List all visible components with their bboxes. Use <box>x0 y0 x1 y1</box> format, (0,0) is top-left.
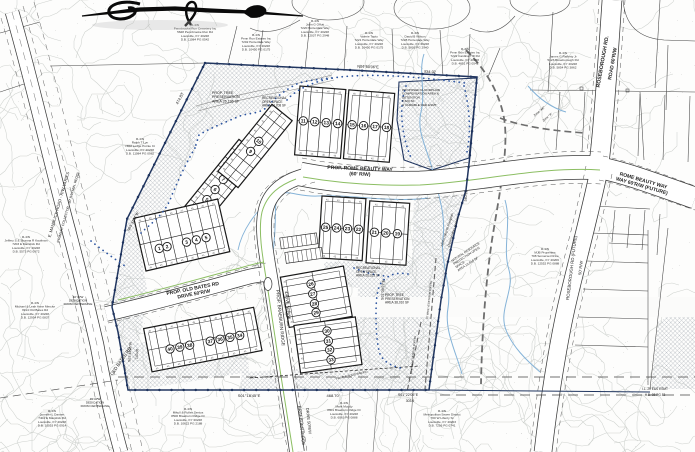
svg-text:D.B. 10450 PG 0175: D.B. 10450 PG 0175 <box>242 47 271 51</box>
svg-text:834.02: 834.02 <box>424 70 436 74</box>
svg-text:24: 24 <box>334 225 340 231</box>
svg-text:D.B. 6063 PG 0888: D.B. 6063 PG 0888 <box>331 415 358 419</box>
svg-text:D.B. 7256 PG 0741: D.B. 7256 PG 0741 <box>429 423 456 427</box>
svg-text:D.B. 5854 PG 3862: D.B. 5854 PG 3862 <box>550 65 577 69</box>
svg-text:468.70': 468.70' <box>327 393 340 398</box>
svg-text:AREA 26,315 SF: AREA 26,315 SF <box>356 274 380 278</box>
svg-text:D.B. 12552 PG 0888: D.B. 12552 PG 0888 <box>531 261 560 265</box>
svg-text:FROM CENTERLINE: FROM CENTERLINE <box>81 404 110 408</box>
svg-text:S01°18'45"E: S01°18'45"E <box>238 393 261 398</box>
svg-text:19: 19 <box>394 231 400 237</box>
svg-text:13: 13 <box>323 120 329 126</box>
svg-text:FROM CENTERLINE: FROM CENTERLINE <box>64 302 93 306</box>
svg-text:16: 16 <box>361 123 367 129</box>
svg-text:D.B. 5573 PG 0972: D.B. 5573 PG 0972 <box>13 249 40 253</box>
svg-text:D.B. 5803 PG 2940: D.B. 5803 PG 2940 <box>402 45 429 49</box>
svg-text:22: 22 <box>356 227 362 233</box>
svg-text:17: 17 <box>372 124 378 130</box>
svg-text:18: 18 <box>384 125 390 131</box>
svg-text:303.9: 303.9 <box>406 399 415 403</box>
svg-text:D.B. 12954 PG 0837: D.B. 12954 PG 0837 <box>21 315 50 319</box>
svg-text:AREA 34,708 SF: AREA 34,708 SF <box>262 104 286 108</box>
svg-text:23: 23 <box>345 226 351 232</box>
svg-text:D.B. 10622 PG 2188: D.B. 10622 PG 2188 <box>174 421 203 425</box>
svg-text:H.B. 38 PG 88: H.B. 38 PG 88 <box>645 393 666 397</box>
svg-text:20: 20 <box>383 231 389 237</box>
svg-text:12: 12 <box>312 119 318 125</box>
svg-text:D.B. 4851 PG 0542: D.B. 4851 PG 0542 <box>452 61 479 65</box>
svg-text:143.08: 143.08 <box>135 349 140 360</box>
svg-text:D.B. 12037 PG 2948: D.B. 12037 PG 2948 <box>301 33 330 37</box>
svg-text:14: 14 <box>335 121 341 127</box>
svg-text:D.B. 11084 PG 0542: D.B. 11084 PG 0542 <box>181 37 210 41</box>
svg-text:11: 11 <box>300 118 306 124</box>
svg-text:AREA 38,010 SF: AREA 38,010 SF <box>385 301 409 305</box>
svg-text:D.B. 11084 PG 0982: D.B. 11084 PG 0982 <box>126 151 155 155</box>
svg-text:S01°22'05"E: S01°22'05"E <box>398 393 419 397</box>
svg-text:21: 21 <box>371 230 377 236</box>
svg-text:15: 15 <box>349 122 355 128</box>
svg-text:I.L. 20 E&S ESMT: I.L. 20 E&S ESMT <box>642 387 668 391</box>
svg-text:540.16: 540.16 <box>464 190 469 201</box>
svg-text:AREA 26,196 SF: AREA 26,196 SF <box>212 99 240 103</box>
svg-text:(60' R/W): (60' R/W) <box>349 171 371 178</box>
svg-text:25: 25 <box>323 225 329 231</box>
svg-text:N04°50'06"E: N04°50'06"E <box>357 65 379 70</box>
svg-text:D.B. 10053 PG 0914: D.B. 10053 PG 0914 <box>38 423 67 427</box>
svg-text:D.B. 10450 PG 0175: D.B. 10450 PG 0175 <box>355 45 384 49</box>
svg-text:& VARIABLE D&D ESMT: & VARIABLE D&D ESMT <box>402 103 437 107</box>
